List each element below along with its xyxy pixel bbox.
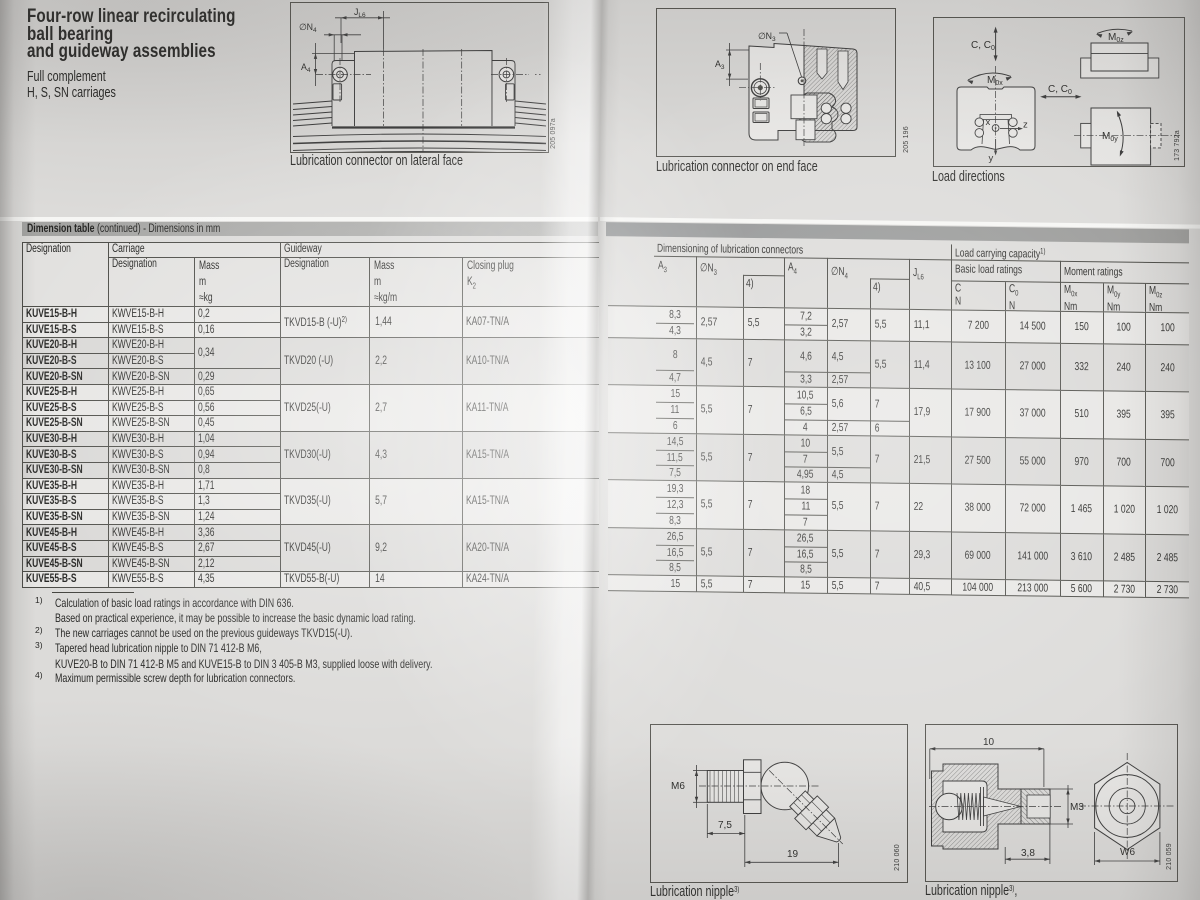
svg-text:7,5: 7,5	[718, 820, 732, 831]
svg-text:19: 19	[787, 849, 799, 860]
svg-text:JL6: JL6	[354, 7, 366, 19]
svg-text:10: 10	[983, 737, 995, 748]
svg-text:3,8: 3,8	[1021, 848, 1035, 859]
svg-text:∅N4: ∅N4	[299, 22, 317, 34]
svg-text:M6: M6	[671, 781, 685, 792]
svg-text:A4: A4	[301, 62, 311, 74]
svg-text:M3: M3	[1070, 802, 1084, 813]
svg-text:W6: W6	[1120, 847, 1135, 858]
